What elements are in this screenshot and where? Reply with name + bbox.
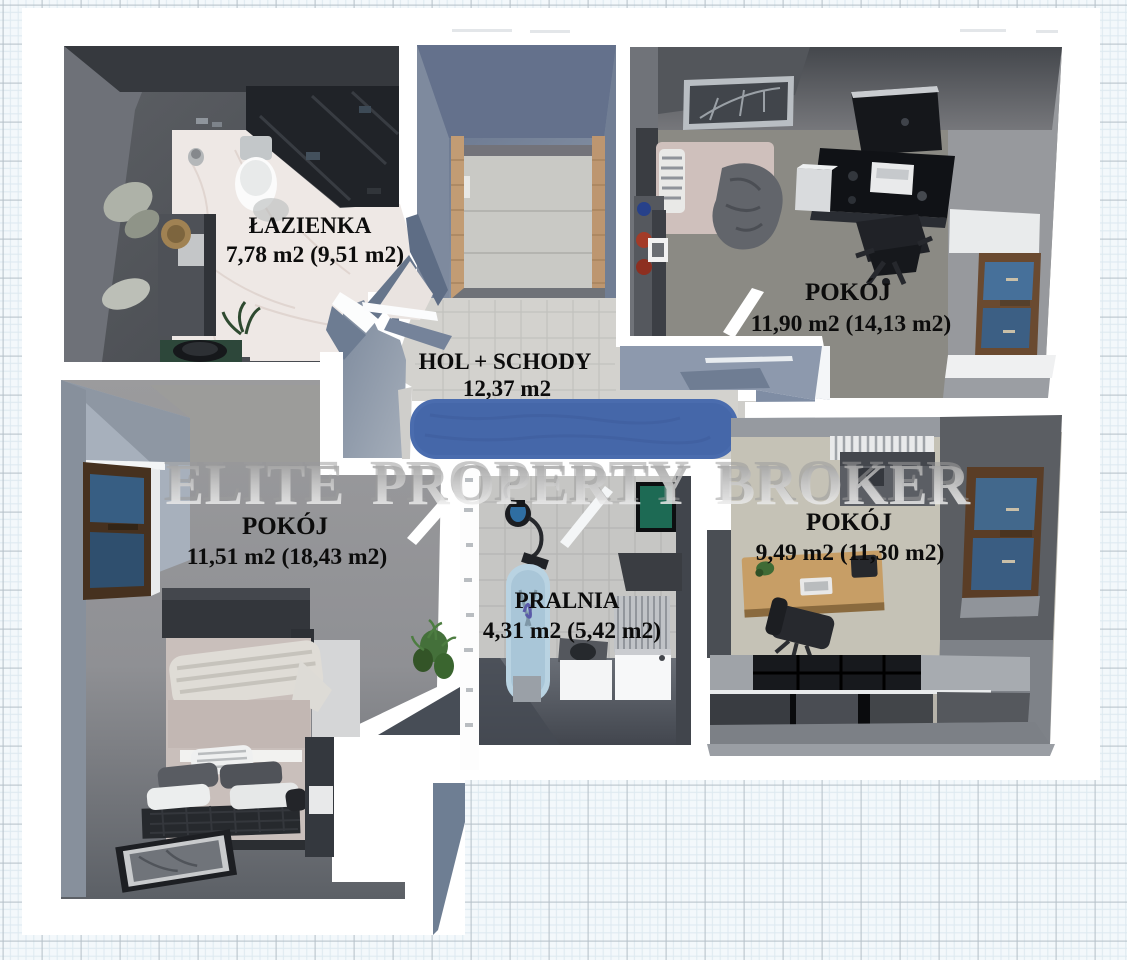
svg-text:9,49 m2 (11,30 m2): 9,49 m2 (11,30 m2): [756, 540, 945, 566]
svg-text:ELITE PROPERTY BROKER: ELITE PROPERTY BROKER: [166, 452, 972, 517]
svg-text:7,78 m2 (9,51 m2): 7,78 m2 (9,51 m2): [226, 242, 404, 268]
svg-text:12,37 m2: 12,37 m2: [463, 376, 551, 401]
svg-text:11,51 m2 (18,43 m2): 11,51 m2 (18,43 m2): [187, 544, 387, 570]
svg-text:11,90 m2 (14,13 m2): 11,90 m2 (14,13 m2): [751, 311, 951, 337]
svg-text:PRALNIA: PRALNIA: [515, 588, 620, 613]
svg-text:4,31 m2 (5,42 m2): 4,31 m2 (5,42 m2): [483, 618, 661, 644]
svg-text:HOL + SCHODY: HOL + SCHODY: [419, 349, 592, 374]
svg-text:ŁAZIENKA: ŁAZIENKA: [249, 213, 372, 238]
svg-text:POKÓJ: POKÓJ: [805, 278, 891, 306]
